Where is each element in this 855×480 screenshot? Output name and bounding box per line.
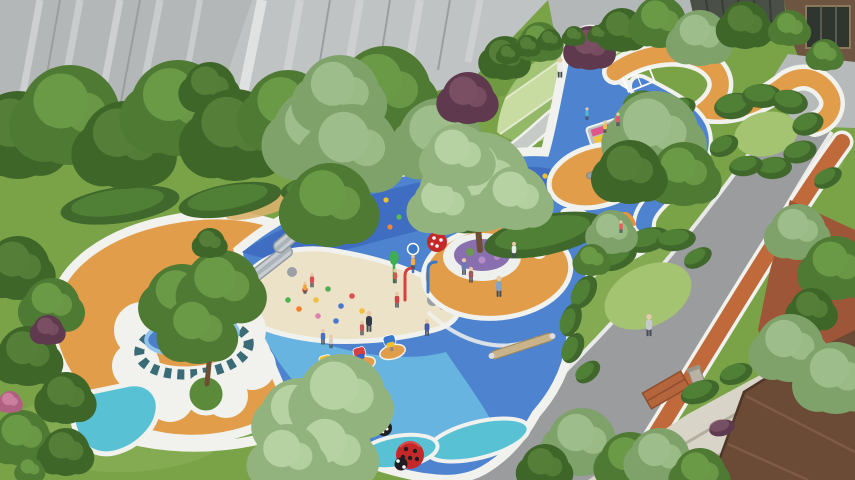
toy xyxy=(313,297,319,303)
toy xyxy=(315,313,321,319)
climbing-hold xyxy=(387,224,392,229)
rendering-viewport: Aerial architectural rendering of a resi… xyxy=(0,0,855,480)
playground-aerial-render: Aerial architectural rendering of a resi… xyxy=(0,0,855,480)
toy xyxy=(359,308,365,314)
toy xyxy=(285,297,291,303)
toy xyxy=(338,303,344,309)
climbing-hold xyxy=(396,214,401,219)
climbing-hold xyxy=(542,173,547,178)
mushroom-sculpture xyxy=(427,232,447,252)
toy xyxy=(349,293,355,299)
toy xyxy=(296,306,302,312)
toy xyxy=(325,286,331,292)
climbing-hold xyxy=(383,197,388,202)
toy xyxy=(333,318,339,324)
